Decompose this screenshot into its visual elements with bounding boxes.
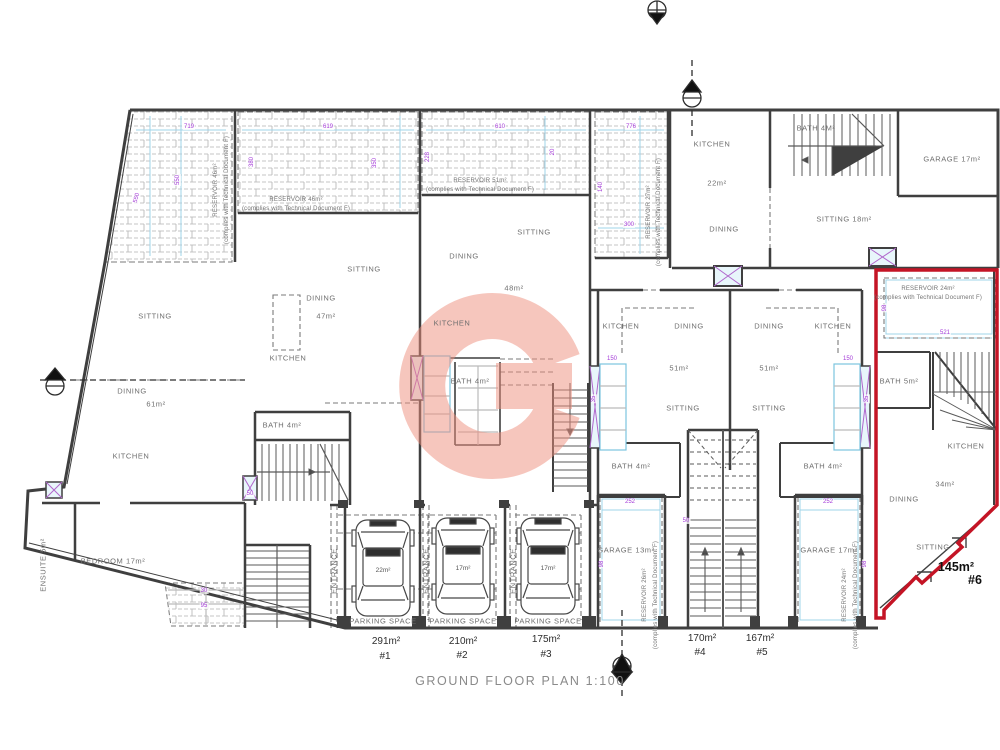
car-2 (432, 518, 494, 614)
stair-unit2 (257, 444, 348, 501)
stair-top-right (788, 114, 890, 176)
section-marker-top (683, 60, 701, 140)
section-marker-top-edge (648, 1, 666, 24)
section-marker-bottom (612, 610, 632, 700)
car-3 (517, 518, 579, 614)
cars (352, 518, 579, 616)
stair-twin (688, 430, 758, 628)
section-marker-left (40, 368, 245, 395)
red-unit6-boundary (876, 270, 997, 618)
floor-plan-page: GROUND FLOOR PLAN 1:100 SITTINGDINING61m… (0, 0, 1000, 750)
floor-plan-drawing (0, 0, 1000, 750)
car-1 (352, 520, 414, 616)
watermark-logo (422, 316, 572, 456)
